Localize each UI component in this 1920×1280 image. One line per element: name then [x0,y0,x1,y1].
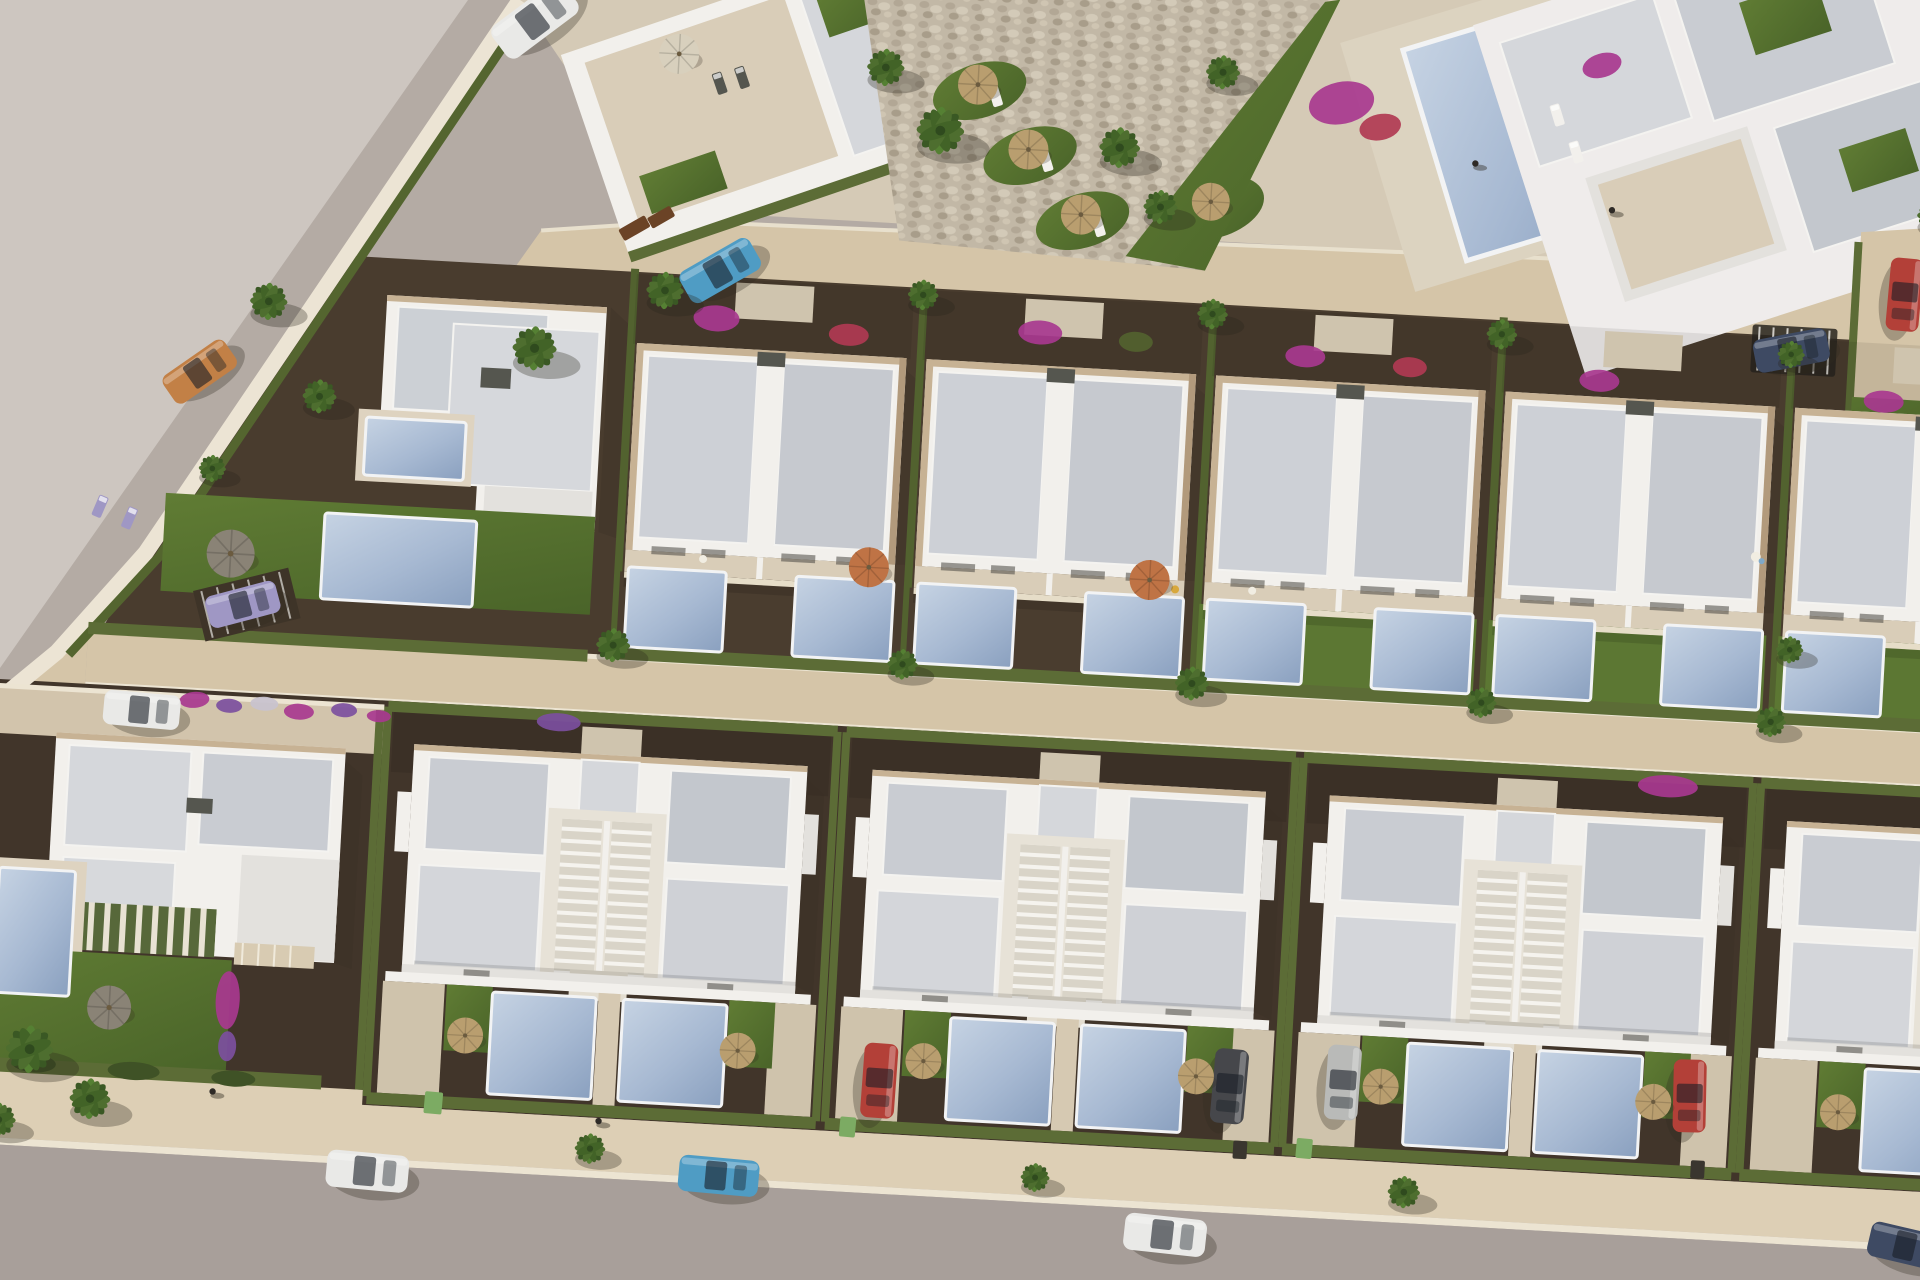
utility-box [839,1116,857,1137]
swimming-pool [1660,625,1762,710]
swimming-pool [1371,609,1473,694]
utility-box [1690,1160,1705,1179]
swimming-pool [618,999,728,1107]
swimming-pool [1203,599,1305,684]
swimming-pool [363,417,466,480]
swimming-pool [945,1018,1055,1126]
swimming-pool [1860,1069,1920,1177]
duplex-house [362,700,842,1129]
swimming-pool [1533,1050,1643,1158]
swimming-pool [1076,1025,1186,1133]
swimming-pool [914,583,1016,668]
utility-box [1232,1141,1247,1160]
utility-box [423,1091,443,1115]
swimming-pool [1493,615,1595,700]
aerial-render [0,0,1920,1280]
swimming-pool [0,867,76,996]
swimming-pool [1402,1043,1512,1151]
swimming-pool [320,513,477,607]
scene-svg [0,0,1920,1280]
pergola-garden [72,901,216,957]
swimming-pool [1081,592,1183,677]
swimming-pool [624,567,726,652]
swimming-pool [487,992,597,1100]
garden-path [234,942,315,968]
swimming-pool [792,576,894,661]
utility-box [1295,1138,1313,1159]
